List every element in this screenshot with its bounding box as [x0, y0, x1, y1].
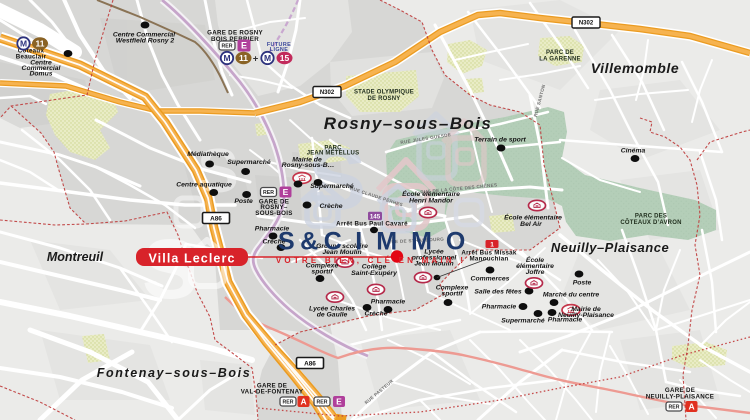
svg-text:A: A: [300, 397, 306, 407]
svg-text:Salle des fêtes: Salle des fêtes: [474, 289, 521, 296]
svg-text:LA GARENNE: LA GARENNE: [539, 57, 580, 63]
svg-text:CÔTEAUX D’AVRON: CÔTEAUX D’AVRON: [620, 218, 681, 226]
svg-text:E: E: [283, 187, 289, 197]
svg-text:VAL-DE-FONTENAY: VAL-DE-FONTENAY: [241, 389, 304, 396]
svg-text:Rosny-sous-B…: Rosny-sous-B…: [282, 162, 335, 169]
svg-text:Crèche: Crèche: [364, 311, 387, 318]
svg-text:S&CIMMO: S&CIMMO: [278, 228, 479, 256]
svg-text:PARC DES: PARC DES: [635, 214, 667, 220]
svg-text:Pharmacie: Pharmacie: [482, 304, 517, 311]
svg-text:Cinéma: Cinéma: [621, 148, 646, 155]
svg-text:Supermarché: Supermarché: [310, 183, 354, 190]
svg-text:Domus: Domus: [29, 71, 52, 78]
svg-text:Joffre: Joffre: [526, 269, 545, 276]
svg-text:de Gaulle: de Gaulle: [317, 312, 348, 319]
svg-text:145: 145: [370, 214, 381, 221]
svg-text:M: M: [223, 53, 230, 63]
svg-text:A86: A86: [210, 215, 222, 222]
svg-text:E: E: [336, 397, 342, 407]
svg-text:A: A: [688, 402, 694, 412]
svg-text:Neuilly-Plaisance: Neuilly-Plaisance: [558, 312, 614, 319]
svg-text:Terrain de sport: Terrain de sport: [474, 137, 526, 144]
svg-text:Commerces: Commerces: [471, 276, 510, 283]
svg-text:1: 1: [490, 242, 494, 249]
svg-text:VOTRE BIEN, CLÉ EN MAIN !: VOTRE BIEN, CLÉ EN MAIN !: [276, 256, 466, 265]
svg-text:Fontenay–sous–Bois: Fontenay–sous–Bois: [97, 366, 252, 380]
svg-text:Henri Mandor: Henri Mandor: [409, 197, 453, 204]
svg-text:Pharmacie: Pharmacie: [371, 299, 406, 306]
svg-text:11: 11: [36, 39, 45, 49]
svg-text:15: 15: [280, 53, 290, 63]
svg-text:sportif: sportif: [441, 291, 463, 298]
svg-text:S: S: [197, 137, 238, 206]
svg-text:sportif: sportif: [311, 269, 333, 276]
svg-text:+: +: [253, 54, 259, 65]
svg-text:M: M: [20, 39, 27, 49]
svg-text:Supermarché: Supermarché: [227, 159, 271, 166]
svg-text:Montreuil: Montreuil: [47, 250, 104, 264]
svg-text:N302: N302: [320, 90, 335, 96]
svg-text:Bel Air: Bel Air: [520, 221, 542, 228]
svg-text:RER: RER: [317, 400, 328, 406]
svg-text:Rosny–sous–Bois: Rosny–sous–Bois: [324, 114, 492, 133]
svg-text:NEUILLY-PLAISANCE: NEUILLY-PLAISANCE: [646, 394, 714, 401]
svg-text:Saint-Exupéry: Saint-Exupéry: [351, 270, 398, 277]
svg-text:RER: RER: [263, 190, 274, 196]
svg-text:M: M: [264, 53, 271, 63]
svg-text:Supermarché: Supermarché: [501, 318, 545, 325]
svg-text:Crèche: Crèche: [319, 203, 342, 210]
svg-text:A86: A86: [304, 360, 316, 367]
svg-text:RER: RER: [283, 400, 294, 406]
svg-text:E: E: [241, 41, 247, 51]
svg-text:PARC DE: PARC DE: [546, 50, 574, 56]
svg-text:Arrêt Bus Paul Cavaré: Arrêt Bus Paul Cavaré: [336, 221, 408, 228]
svg-text:Neuilly–Plaisance: Neuilly–Plaisance: [551, 240, 669, 255]
svg-text:SOUS-BOIS: SOUS-BOIS: [255, 210, 292, 217]
svg-text:Manouchian: Manouchian: [469, 256, 508, 263]
svg-text:Westfield Rosny 2: Westfield Rosny 2: [116, 38, 175, 45]
svg-text:JEAN MÉTELLUS: JEAN MÉTELLUS: [307, 149, 360, 157]
svg-text:Marché du centre: Marché du centre: [543, 292, 600, 299]
svg-text:DE ROSNY: DE ROSNY: [368, 96, 401, 102]
svg-text:Villemomble: Villemomble: [591, 60, 680, 76]
svg-text:RER: RER: [669, 405, 680, 411]
svg-text:N302: N302: [579, 21, 594, 27]
svg-text:Centre aquatique: Centre aquatique: [176, 182, 232, 189]
svg-text:Médiathèque: Médiathèque: [187, 151, 229, 158]
svg-text:Poste: Poste: [573, 280, 592, 287]
svg-text:11: 11: [239, 53, 248, 63]
svg-text:STADE OLYMPIQUE: STADE OLYMPIQUE: [354, 90, 414, 96]
svg-text:Villa Leclerc: Villa Leclerc: [148, 252, 235, 266]
svg-text:RER: RER: [222, 44, 233, 50]
svg-text:Poste: Poste: [234, 198, 253, 205]
